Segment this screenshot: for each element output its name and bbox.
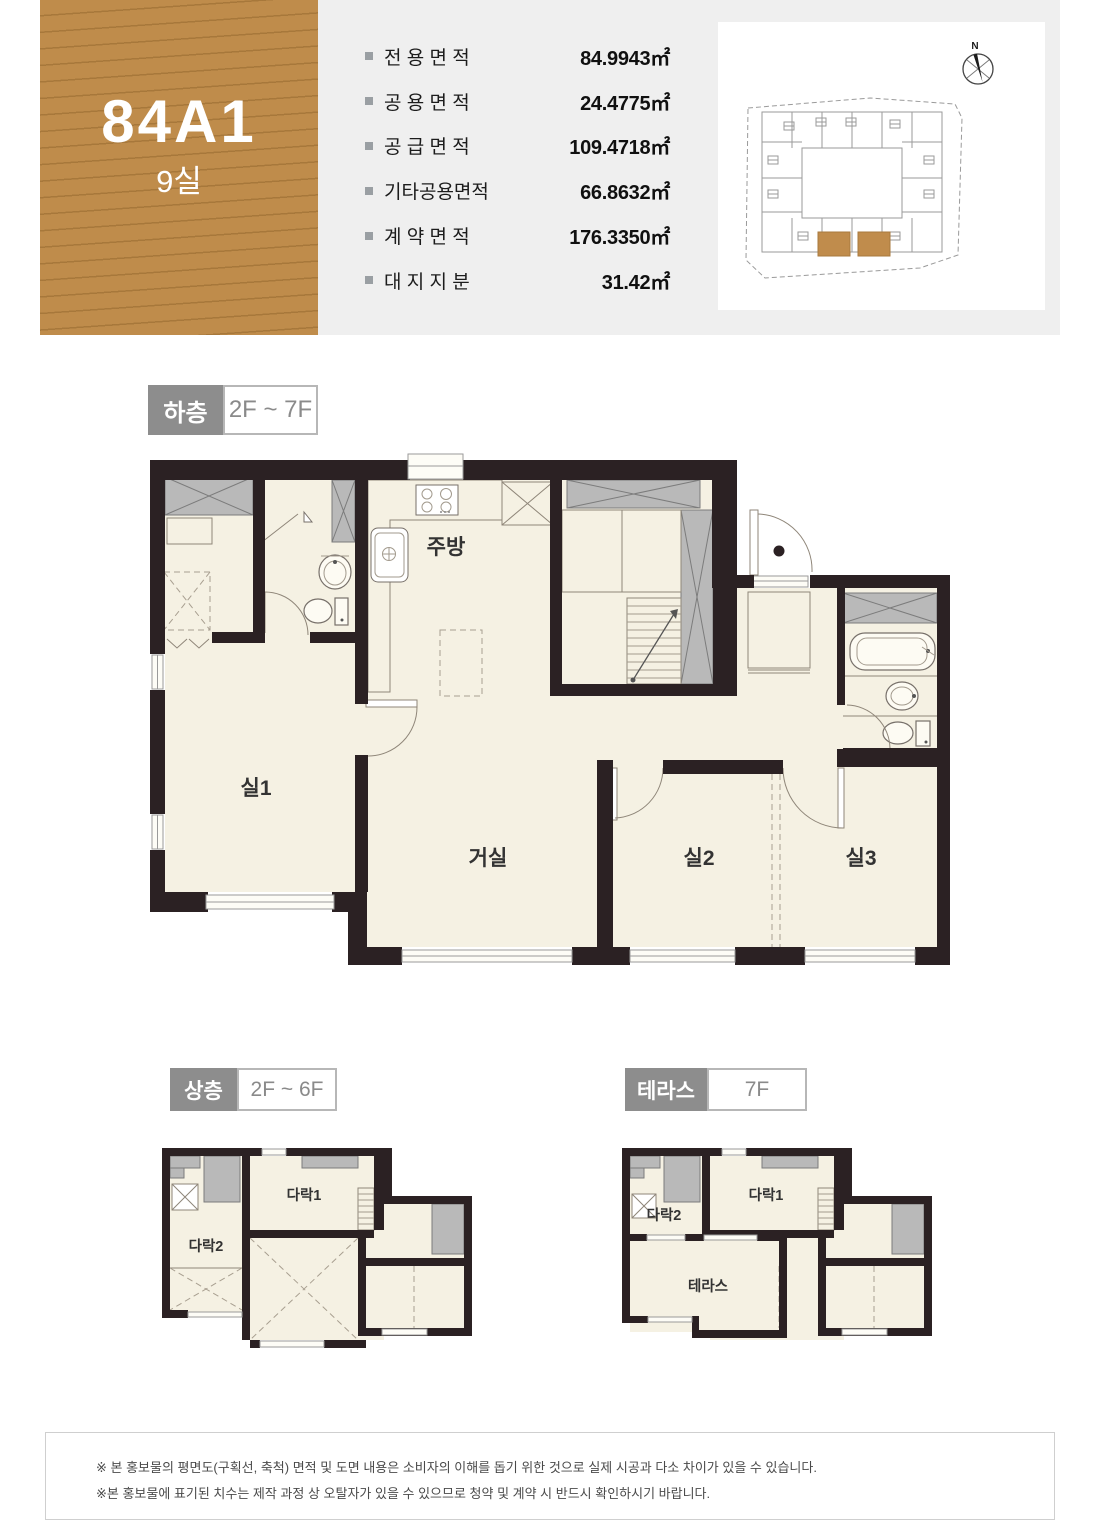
spec-label: 대 지 지 분 xyxy=(384,267,514,294)
spec-label: 공 급 면 적 xyxy=(384,132,514,159)
disclaimer-box: ※ 본 홍보물의 평면도(구획선, 축척) 면적 및 도면 내용은 소비자의 이… xyxy=(45,1432,1055,1520)
upper-floor-tag: 상층 2F ~ 6F xyxy=(170,1068,337,1111)
bullet-icon xyxy=(365,187,373,195)
floor-tag-name: 하층 xyxy=(148,385,223,435)
floor-tag-name: 상층 xyxy=(170,1068,237,1111)
spec-label: 계 약 면 적 xyxy=(384,222,514,249)
unit-brand-box: 84A1 9실 xyxy=(40,0,318,335)
label-room2: 실2 xyxy=(684,847,715,870)
label-attic1: 다락1 xyxy=(287,1186,322,1204)
compass-icon: N xyxy=(963,41,993,84)
spec-value: 84.9943㎡ xyxy=(514,42,670,71)
spec-row: 공 용 면 적 24.4775㎡ xyxy=(365,79,670,124)
spec-value: 24.4775㎡ xyxy=(514,87,670,116)
sink-icon xyxy=(886,682,918,710)
spec-row: 공 급 면 적 109.4718㎡ xyxy=(365,124,670,169)
lower-floor-plan: 주방 실1 거실 실2 실3 xyxy=(150,452,960,992)
spec-label: 전 용 면 적 xyxy=(384,43,514,70)
site-building-outline xyxy=(746,98,962,278)
spec-row: 대 지 지 분 31.42㎡ xyxy=(365,258,670,303)
floor-tag-range: 2F ~ 7F xyxy=(223,385,318,435)
upper-floor-plan: 다락1 다락2 xyxy=(162,1148,472,1348)
spec-value: 176.3350㎡ xyxy=(514,221,670,250)
spec-value: 31.42㎡ xyxy=(514,266,670,295)
floor-tag-name: 테라스 xyxy=(625,1068,707,1111)
spec-value: 66.8632㎡ xyxy=(514,176,670,205)
bullet-icon xyxy=(365,276,373,284)
label-room1: 실1 xyxy=(241,777,272,800)
bullet-icon xyxy=(365,232,373,240)
terrace-floor-tag: 테라스 7F xyxy=(625,1068,807,1111)
entrance-door-panel xyxy=(750,510,758,575)
toilet-icon xyxy=(883,721,930,746)
label-attic1: 다락1 xyxy=(749,1186,784,1204)
label-living: 거실 xyxy=(469,847,508,870)
spec-row: 전 용 면 적 84.9943㎡ xyxy=(365,34,670,79)
door-arc xyxy=(758,514,812,572)
kitchen-sink-icon xyxy=(371,528,408,582)
unit-room-count: 9실 xyxy=(40,166,318,197)
site-plan-drawing: N xyxy=(718,22,1045,310)
spec-row: 기타공용면적 66.8632㎡ xyxy=(365,168,670,213)
stove-icon xyxy=(416,485,458,515)
svg-text:N: N xyxy=(971,41,978,52)
terrace-floor-plan: 다락1 다락2 테라스 xyxy=(622,1148,932,1348)
lower-floor-tag: 하층 2F ~ 7F xyxy=(148,385,318,435)
floor-tag-range: 2F ~ 6F xyxy=(237,1068,337,1111)
spec-label: 기타공용면적 xyxy=(384,177,514,204)
label-kitchen: 주방 xyxy=(427,536,466,559)
spec-label: 공 용 면 적 xyxy=(384,88,514,115)
unit-code: 84A1 xyxy=(40,92,318,152)
label-attic2: 다락2 xyxy=(647,1206,682,1224)
floor-tag-range: 7F xyxy=(707,1068,807,1111)
door-panel xyxy=(366,700,417,707)
door-knob-dot xyxy=(774,546,785,557)
label-room3: 실3 xyxy=(846,847,877,870)
bullet-icon xyxy=(365,97,373,105)
label-terrace: 테라스 xyxy=(688,1278,728,1295)
door-panel xyxy=(838,768,844,828)
spec-value: 109.4718㎡ xyxy=(514,131,670,160)
disclaimer-line1: ※ 본 홍보물의 평면도(구획선, 축척) 면적 및 도면 내용은 소비자의 이… xyxy=(96,1455,1034,1481)
spec-row: 계 약 면 적 176.3350㎡ xyxy=(365,213,670,258)
highlighted-unit xyxy=(858,232,890,256)
area-spec-list: 전 용 면 적 84.9943㎡ 공 용 면 적 24.4775㎡ 공 급 면 … xyxy=(365,34,670,303)
bathtub-icon xyxy=(850,633,935,670)
label-attic2: 다락2 xyxy=(189,1237,224,1255)
highlighted-unit xyxy=(818,232,850,256)
toilet-icon xyxy=(304,598,348,625)
bullet-icon xyxy=(365,142,373,150)
sink-icon xyxy=(319,555,351,589)
stair-cores xyxy=(768,118,934,240)
bullet-icon xyxy=(365,52,373,60)
disclaimer-line2: ※본 홍보물에 표기된 치수는 제작 과정 상 오탈자가 있을 수 있으므로 청… xyxy=(96,1481,1034,1507)
site-plan: N xyxy=(718,22,1045,310)
